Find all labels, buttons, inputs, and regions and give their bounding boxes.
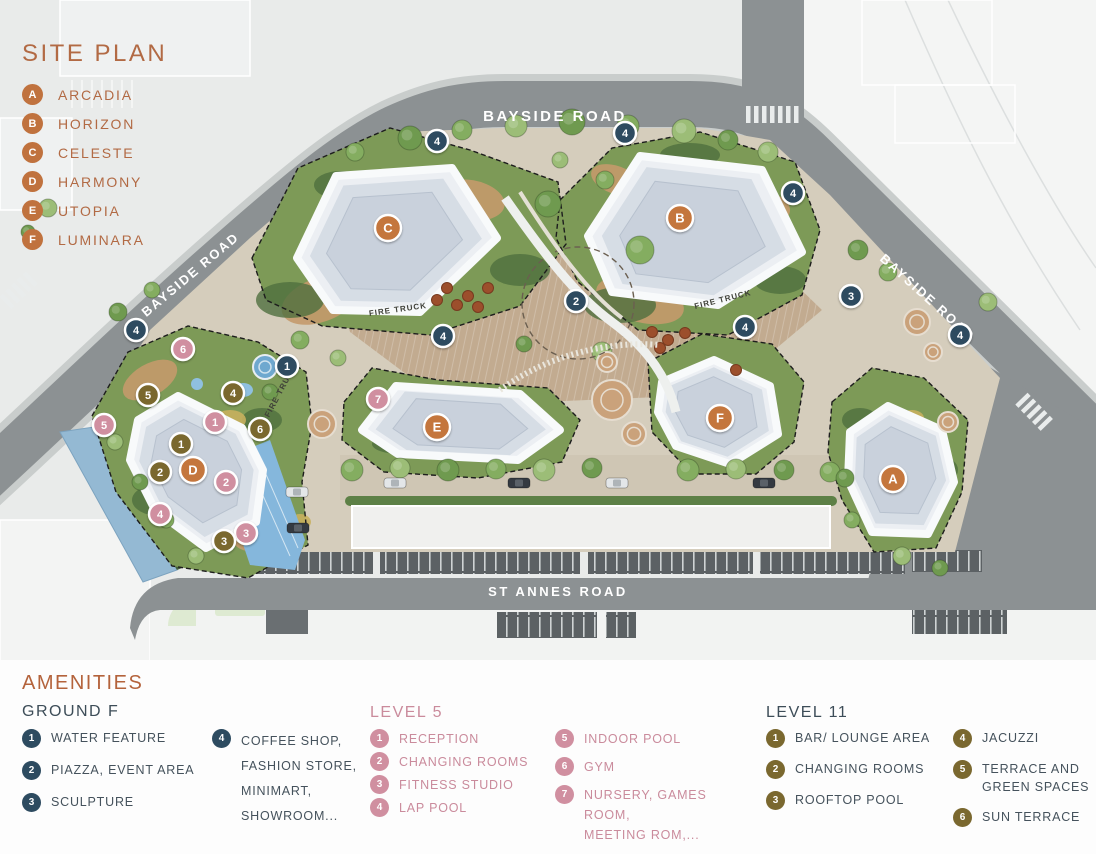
marker-ground-4: 4 [734,316,756,338]
car-roof [613,480,621,487]
amenity-label-level11-5: TERRACE ANDGREEN SPACES [982,760,1089,796]
marker-ground-4: 4 [782,182,804,204]
marker-label: 4 [434,136,441,148]
tree-highlight [112,306,120,314]
marker-ground-3: 3 [840,285,862,307]
marker-buildings-f: F [707,405,733,431]
marker-label: 2 [573,296,579,308]
marker-ground-4: 4 [949,324,971,346]
marker-label: 2 [157,467,163,479]
tree-highlight [146,284,153,291]
umbrella-table [647,327,658,338]
legend-badge-a: A [22,84,43,105]
tree-highlight [402,130,413,141]
marker-ground-1: 1 [276,355,298,377]
marker-label: 1 [284,361,290,373]
tree-highlight [934,562,941,569]
marker-label: D [188,463,197,478]
hedge-row [345,496,837,506]
amenity-item-level5-7: 7NURSERY, GAMES ROOM,MEETING ROM,... [555,785,750,845]
marker-label: 6 [257,424,263,436]
amenity-item-ground-4: 4COFFEE SHOP,FASHION STORE,MINIMART,SHOW… [212,729,357,829]
amenities-heading-ground: GROUND F [22,703,119,721]
amenities-panel: AMENITIES GROUND F 1WATER FEATURE2PIAZZA… [0,660,1096,854]
marker-label: F [716,411,724,426]
amenity-label-level11-2: CHANGING ROOMS [795,760,924,778]
umbrella-table [483,283,494,294]
amenity-item-ground-1: 1WATER FEATURE [22,729,194,748]
legend-item-harmony: D HARMONY [22,171,167,192]
amenity-item-level5-4: 4LAP POOL [370,798,528,818]
garden-ornament [938,412,958,432]
car-roof [760,480,768,487]
amenity-label-ground-4: COFFEE SHOP,FASHION STORE,MINIMART,SHOWR… [241,729,357,829]
tree-highlight [536,462,546,472]
marker-level11-2: 2 [149,461,171,483]
parking-strips [245,550,982,574]
amenity-label-level5-7: NURSERY, GAMES ROOM,MEETING ROM,... [584,785,750,845]
tree-highlight [109,436,116,443]
shrub-patch [490,254,550,286]
amenity-badge-level11-4: 4 [953,729,972,748]
amenity-badge-ground-1: 1 [22,729,41,748]
marker-level5-6: 6 [172,338,194,360]
marker-level5-2: 2 [215,471,237,493]
marker-label: 5 [145,390,151,402]
marker-ground-4: 4 [432,325,454,347]
marker-ground-4: 4 [426,130,448,152]
umbrella-table [473,302,484,313]
tree-highlight [349,146,357,154]
amenity-item-level11-2: 2CHANGING ROOMS [766,760,930,779]
legend-item-celeste: C CELESTE [22,142,167,163]
amenity-label-ground-3: SCULPTURE [51,793,134,812]
marker-label: 6 [180,344,186,356]
tree-highlight [585,461,594,470]
umbrella-table [452,300,463,311]
amenity-label-level11-1: BAR/ LOUNGE AREA [795,729,930,747]
road-label-bayside-top: BAYSIDE ROAD [483,108,627,125]
marker-label: 4 [133,325,140,337]
amenity-badge-level11-6: 6 [953,808,972,827]
legend-label-luminara: LUMINARA [58,232,145,248]
tree-highlight [777,463,786,472]
marker-label: A [888,472,898,487]
umbrella-table [432,295,443,306]
legend-badge-e: E [22,200,43,221]
tree-highlight [676,123,687,134]
amenity-label-level5-1: RECEPTION [399,729,479,749]
tree-highlight [190,550,197,557]
amenity-item-ground-2: 2PIAZZA, EVENT AREA [22,761,194,780]
marker-label: 4 [440,331,447,343]
garden-ornament [622,422,646,446]
car-roof [391,480,399,487]
amenity-badge-ground-4: 4 [212,729,231,748]
legend-label-horizon: HORIZON [58,116,135,132]
amenity-badge-level5-2: 2 [370,752,389,771]
tree-highlight [761,145,770,154]
amenity-badge-level11-1: 1 [766,729,785,748]
legend-item-luminara: F LUMINARA [22,229,167,250]
marker-level11-5: 5 [137,384,159,406]
tree-highlight [264,386,271,393]
legend-badge-d: D [22,171,43,192]
amenity-label-ground-2: PIAZZA, EVENT AREA [51,761,194,780]
amenity-item-level11-6: 6SUN TERRACE [953,808,1089,827]
legend-badge-f: F [22,229,43,250]
amenity-label-level11-6: SUN TERRACE [982,808,1080,826]
marker-buildings-b: B [667,205,693,231]
amenity-item-level5-6: 6GYM [555,757,750,777]
amenity-item-level11-5: 5TERRACE ANDGREEN SPACES [953,760,1089,796]
amenity-item-level5-3: 3FITNESS STUDIO [370,775,528,795]
tree-highlight [294,334,302,342]
legend-item-arcadia: A ARCADIA [22,84,167,105]
amenity-label-level5-5: INDOOR POOL [584,729,681,749]
car-roof [515,480,523,487]
amenity-item-level11-3: 3ROOFTOP POOL [766,791,930,810]
amenity-badge-ground-3: 3 [22,793,41,812]
marker-label: 4 [622,128,629,140]
marker-label: 2 [223,477,229,489]
car-roof [294,525,302,532]
marker-label: 4 [957,330,964,342]
legend-badge-c: C [22,142,43,163]
marker-level11-1: 1 [170,433,192,455]
tree-highlight [839,472,847,480]
legend-label-harmony: HARMONY [58,174,142,190]
tree-highlight [332,352,339,359]
tree-highlight [851,243,860,252]
tree-highlight [680,462,690,472]
marker-label: B [675,211,684,226]
amenity-badge-level5-3: 3 [370,775,389,794]
car-roof [293,489,301,496]
amenity-badge-level11-2: 2 [766,760,785,779]
amenity-badge-ground-2: 2 [22,761,41,780]
amenity-item-level5-2: 2CHANGING ROOMS [370,752,528,772]
amenity-item-level5-1: 1RECEPTION [370,729,528,749]
tree-highlight [554,154,561,161]
marker-level11-3: 3 [213,530,235,552]
tree-highlight [134,476,141,483]
marker-level5-7: 7 [367,388,389,410]
garden-ornament [924,343,942,361]
marker-label: C [383,221,393,236]
marker-label: 1 [178,439,184,451]
amenity-badge-level5-6: 6 [555,757,574,776]
amenities-group-level-11: LEVEL 11 1BAR/ LOUNGE AREA2CHANGING ROOM… [766,660,1096,854]
marker-buildings-c: C [375,215,401,241]
marker-level11-6: 6 [249,418,271,440]
legend-label-utopia: UTOPIA [58,203,121,219]
road-label-st-annes: ST ANNES ROAD [488,584,628,599]
tree-highlight [599,174,607,182]
amenity-item-level11-1: 1BAR/ LOUNGE AREA [766,729,930,748]
site-plan-legend: SITE PLAN A ARCADIA B HORIZON C CELESTE … [22,40,167,258]
garden-ornament [308,410,336,438]
marker-level5-1: 1 [204,411,226,433]
tree-highlight [440,462,450,472]
marker-level5-4: 4 [149,503,171,525]
umbrella-table [680,328,691,339]
amenity-label-ground-1: WATER FEATURE [51,729,166,748]
amenity-label-level5-4: LAP POOL [399,798,467,818]
amenity-badge-level5-1: 1 [370,729,389,748]
amenity-item-level5-5: 5INDOOR POOL [555,729,750,749]
amenity-badge-level5-7: 7 [555,785,574,804]
amenities-group-ground-floor: GROUND F 1WATER FEATURE2PIAZZA, EVENT AR… [22,660,362,854]
amenities-group-level-5: LEVEL 5 1RECEPTION2CHANGING ROOMS3FITNES… [370,660,750,854]
retail-building-roof [352,506,830,548]
marker-level11-4: 4 [222,382,244,404]
marker-buildings-e: E [424,414,450,440]
legend-item-utopia: E UTOPIA [22,200,167,221]
marker-label: 3 [243,528,249,540]
marker-label: 4 [790,188,797,200]
amenity-label-level5-6: GYM [584,757,615,777]
marker-level5-5: 5 [93,414,115,436]
amenity-badge-level5-4: 4 [370,798,389,817]
site-plan-title: SITE PLAN [22,40,167,68]
tree-highlight [982,296,990,304]
amenities-heading-level11: LEVEL 11 [766,704,848,722]
legend-label-arcadia: ARCADIA [58,87,133,103]
legend-label-celeste: CELESTE [58,145,134,161]
amenity-label-level5-3: FITNESS STUDIO [399,775,514,795]
tree-highlight [630,240,643,253]
umbrella-table [442,283,453,294]
marker-label: 4 [157,509,164,521]
tree-highlight [518,338,525,345]
tree-highlight [393,461,402,470]
site-plan-page: BAYSIDE ROAD BAYSIDE ROAD BAYSIDE ROAD S… [0,0,1096,854]
amenities-heading-level5: LEVEL 5 [370,704,443,722]
amenity-label-level5-2: CHANGING ROOMS [399,752,528,772]
marker-level5-3: 3 [235,522,257,544]
amenity-badge-level11-5: 5 [953,760,972,779]
garden-ornament [904,309,930,335]
tree-highlight [729,462,738,471]
amenity-item-level11-4: 4JACUZZI [953,729,1089,748]
amenity-label-level11-3: ROOFTOP POOL [795,791,904,809]
tree-highlight [896,550,904,558]
amenity-badge-level5-5: 5 [555,729,574,748]
legend-badge-b: B [22,113,43,134]
tree-highlight [344,462,354,472]
tree-highlight [455,123,464,132]
garden-ornament [592,380,632,420]
marker-label: 5 [101,420,107,432]
tree-highlight [489,462,498,471]
amenity-item-ground-3: 3SCULPTURE [22,793,194,812]
amenity-label-level11-4: JACUZZI [982,729,1039,747]
tree-highlight [721,133,730,142]
marker-label: 3 [221,536,227,548]
marker-label: 3 [848,291,854,303]
amenity-badge-level11-3: 3 [766,791,785,810]
marker-label: E [433,420,442,435]
marker-label: 7 [375,394,381,406]
marker-label: 1 [212,417,218,429]
tree-highlight [823,465,832,474]
marker-ground-4: 4 [614,122,636,144]
marker-ground-4: 4 [125,319,147,341]
legend-item-horizon: B HORIZON [22,113,167,134]
marker-label: 4 [230,388,237,400]
umbrella-table [731,365,742,376]
marker-buildings-d: D [180,457,206,483]
marker-label: 4 [742,322,749,334]
tree-highlight [846,514,853,521]
marker-buildings-a: A [880,466,906,492]
umbrella-table [463,291,474,302]
tree-highlight [539,195,551,207]
marker-ground-2: 2 [565,290,587,312]
